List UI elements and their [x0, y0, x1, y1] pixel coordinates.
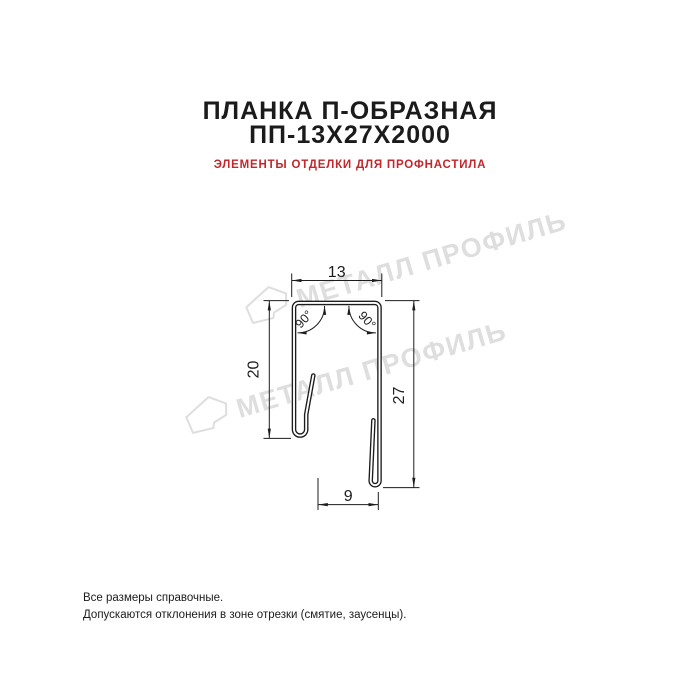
metall-profil-logo-icon — [183, 393, 232, 435]
dimension-label-27: 27 — [391, 387, 408, 405]
footer-notes: Все размеры справочные. Допускаются откл… — [83, 590, 406, 624]
dimension-label-20: 20 — [246, 361, 263, 379]
dimension-left-height — [264, 301, 292, 439]
watermark-text: МЕТАЛЛ ПРОФИЛЬ — [293, 205, 570, 313]
watermark-middle: МЕТАЛЛ ПРОФИЛЬ — [183, 311, 511, 439]
metall-profil-logo-icon — [243, 283, 292, 325]
footer-note-2: Допускаются отклонения в зоне отрезки (с… — [83, 607, 406, 624]
angle-label-right: 90° — [355, 309, 378, 332]
footer-note-1: Все размеры справочные. — [83, 590, 406, 607]
dimension-label-13: 13 — [328, 264, 346, 281]
dimension-label-9: 9 — [344, 488, 353, 505]
watermark-text: МЕТАЛЛ ПРОФИЛЬ — [233, 315, 510, 423]
